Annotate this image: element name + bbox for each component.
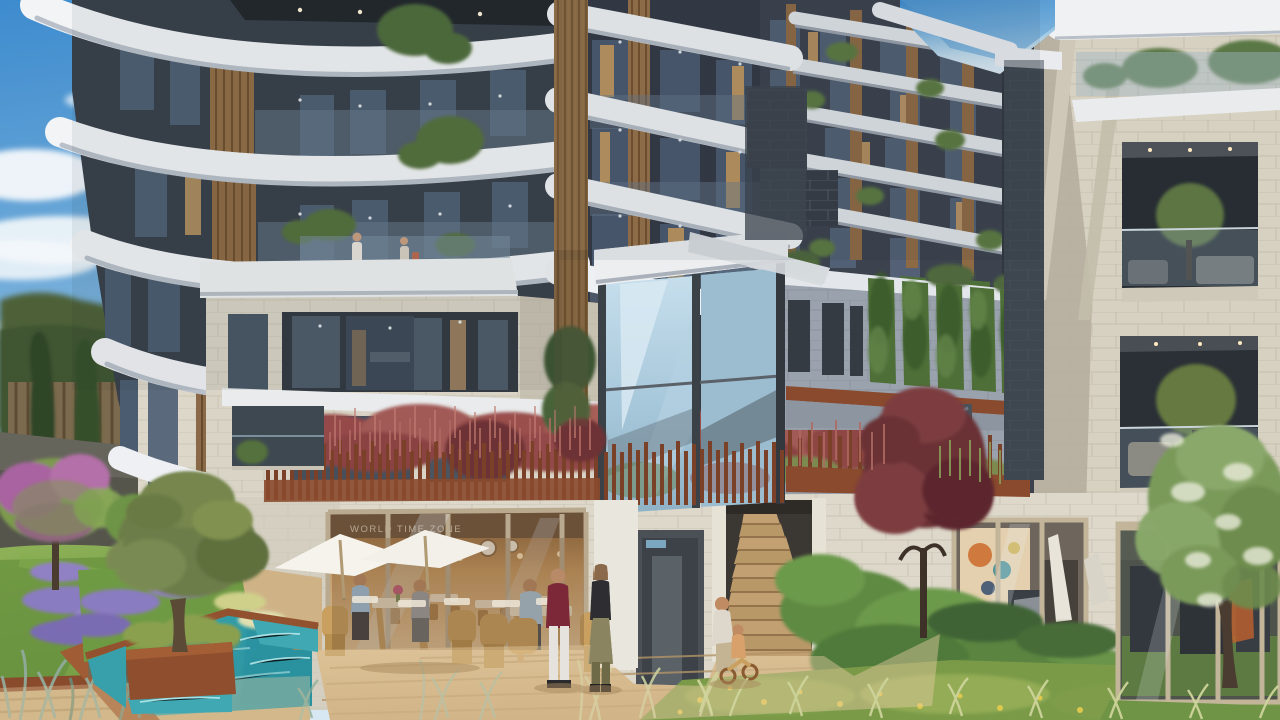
svg-text:WORLD TIME ZONE: WORLD TIME ZONE [350,524,462,535]
